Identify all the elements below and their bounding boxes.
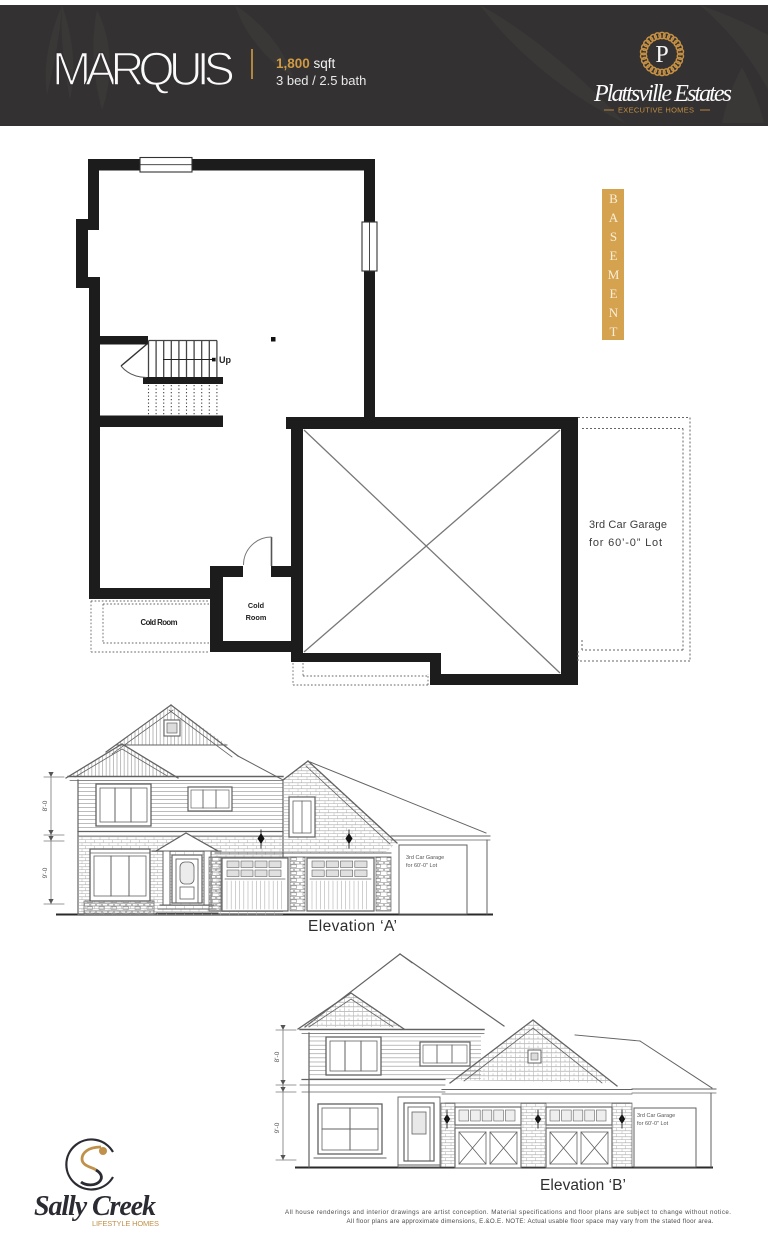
svg-text:9'-0: 9'-0 (274, 1122, 281, 1133)
svg-text:3rd Car Garage: 3rd Car Garage (637, 1113, 675, 1119)
svg-text:Sally Creek: Sally Creek (34, 1191, 156, 1222)
svg-text:All floor plans are approximat: All floor plans are approximate dimensio… (347, 1218, 714, 1225)
svg-text:8'-0: 8'-0 (274, 1051, 281, 1062)
svg-text:All house renderings and inter: All house renderings and interior drawin… (285, 1209, 731, 1216)
svg-text:for 60'-0" Lot: for 60'-0" Lot (637, 1121, 669, 1127)
svg-text:LIFESTYLE HOMES: LIFESTYLE HOMES (92, 1219, 159, 1228)
svg-text:Elevation ‘B’: Elevation ‘B’ (540, 1177, 626, 1194)
